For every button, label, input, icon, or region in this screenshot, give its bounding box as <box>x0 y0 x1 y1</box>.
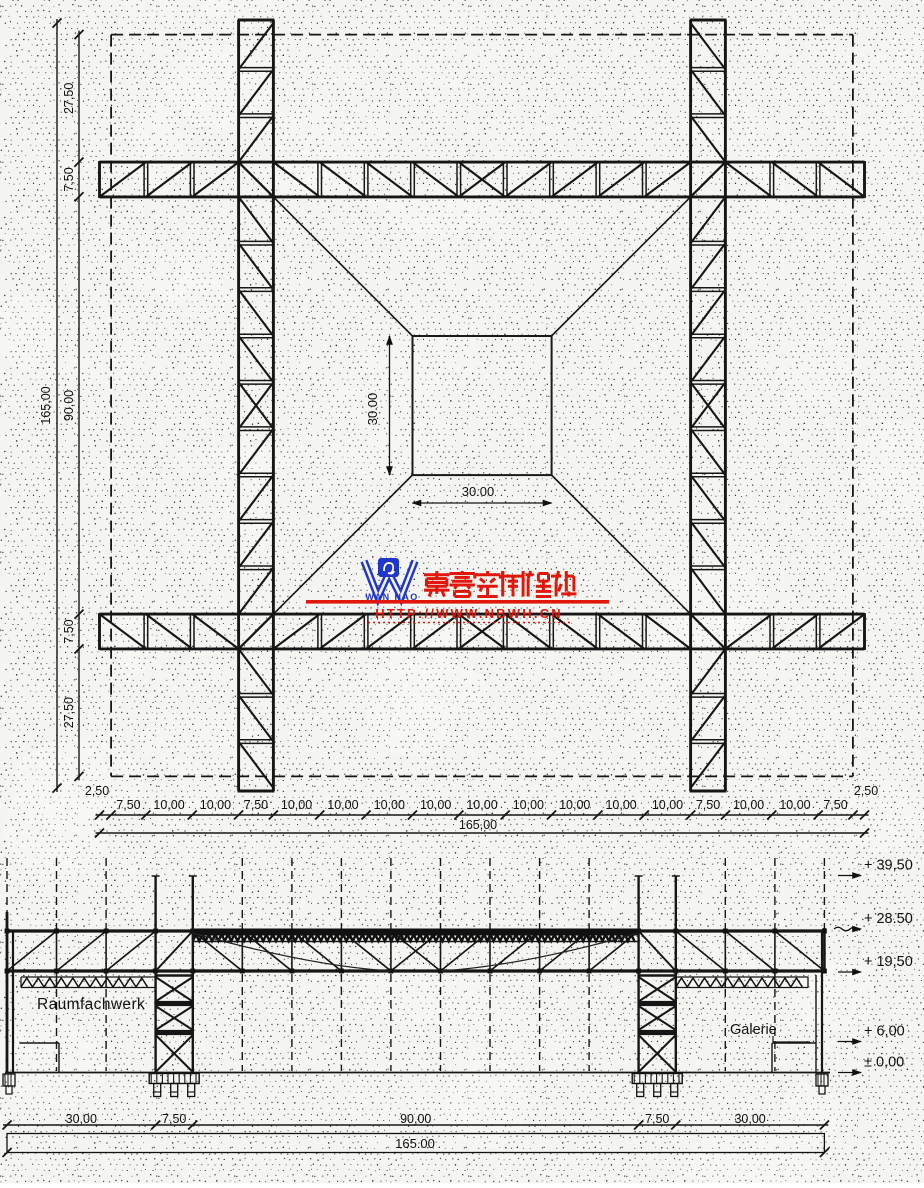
svg-text:7,50: 7,50 <box>823 798 847 812</box>
svg-text:2,50: 2,50 <box>85 784 109 798</box>
svg-text:7,50: 7,50 <box>62 167 76 191</box>
svg-text:165,00: 165,00 <box>39 386 53 424</box>
svg-text:7,50: 7,50 <box>162 1112 186 1126</box>
svg-text:Raumfachwerk: Raumfachwerk <box>37 996 145 1013</box>
svg-text:± 0,00: ± 0,00 <box>864 1055 904 1071</box>
svg-text:Galerie: Galerie <box>730 1022 777 1038</box>
svg-text:+ 39,50: + 39,50 <box>864 858 913 874</box>
svg-text:30,00: 30,00 <box>734 1112 765 1126</box>
svg-text:+ 28.50: + 28.50 <box>864 911 913 927</box>
svg-text:HTTP://WWW.NBWH.CN: HTTP://WWW.NBWH.CN <box>375 606 563 621</box>
svg-text:10,00: 10,00 <box>559 798 590 812</box>
svg-text:165,00: 165,00 <box>459 818 497 832</box>
svg-text:27,50: 27,50 <box>62 83 76 114</box>
svg-text:30,00: 30,00 <box>66 1112 97 1126</box>
svg-text:30.00: 30.00 <box>462 484 495 499</box>
svg-text:10,00: 10,00 <box>733 798 764 812</box>
svg-text:10,00: 10,00 <box>327 798 358 812</box>
svg-text:165.00: 165.00 <box>395 1136 435 1151</box>
svg-text:7,50: 7,50 <box>696 798 720 812</box>
svg-text:7,50: 7,50 <box>62 619 76 643</box>
svg-text:7,50: 7,50 <box>116 798 140 812</box>
svg-text:30.00: 30.00 <box>365 393 380 426</box>
svg-text:10,00: 10,00 <box>420 798 451 812</box>
svg-text:90,00: 90,00 <box>400 1112 431 1126</box>
svg-text:10,00: 10,00 <box>153 798 184 812</box>
svg-text:10,00: 10,00 <box>779 798 810 812</box>
svg-text:10,00: 10,00 <box>513 798 544 812</box>
svg-text:10,00: 10,00 <box>200 798 231 812</box>
svg-text:10,00: 10,00 <box>652 798 683 812</box>
svg-text:+ 6,00: + 6,00 <box>864 1024 905 1040</box>
svg-text:+ 19,50: + 19,50 <box>864 954 913 970</box>
svg-text:10,00: 10,00 <box>466 798 497 812</box>
svg-text:90,00: 90,00 <box>62 390 76 421</box>
svg-text:7,50: 7,50 <box>244 798 268 812</box>
svg-text:2,50: 2,50 <box>854 784 878 798</box>
svg-text:7,50: 7,50 <box>645 1112 669 1126</box>
svg-text:10,00: 10,00 <box>281 798 312 812</box>
svg-text:27,50: 27,50 <box>62 697 76 728</box>
svg-text:10,00: 10,00 <box>374 798 405 812</box>
svg-text:10,00: 10,00 <box>605 798 636 812</box>
